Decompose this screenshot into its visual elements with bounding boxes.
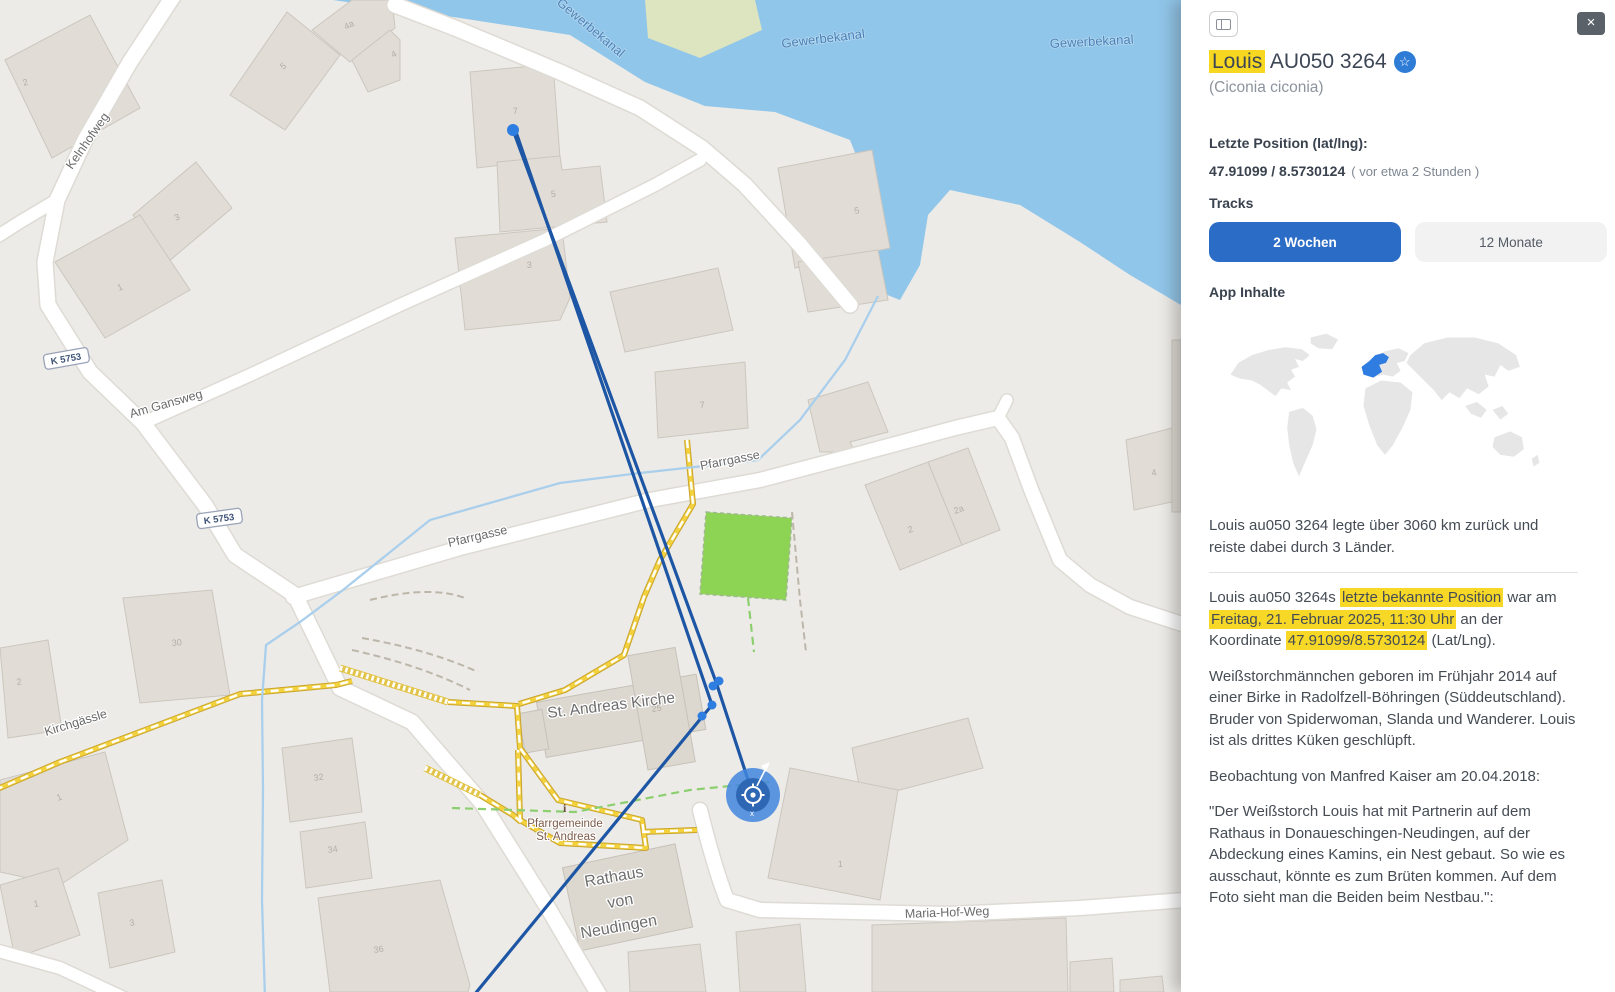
bio-paragraph: Weißstorchmännchen geboren im Frühjahr 2… xyxy=(1209,666,1578,752)
marker-x-label: x xyxy=(750,809,754,818)
tracks-toggle: 2 Wochen 12 Monate xyxy=(1209,222,1607,262)
sports-pitch xyxy=(700,512,792,600)
summary-last-position: Louis au050 3264s letzte bekannte Positi… xyxy=(1209,587,1578,652)
close-button[interactable]: × xyxy=(1577,12,1605,35)
app-contents-label: App Inhalte xyxy=(1209,284,1605,300)
svg-text:1: 1 xyxy=(838,859,844,869)
svg-text:3: 3 xyxy=(527,260,533,270)
observation-heading: Beobachtung von Manfred Kaiser am 20.04.… xyxy=(1209,766,1578,788)
tracks-2-weeks-button[interactable]: 2 Wochen xyxy=(1209,222,1401,262)
map[interactable]: K 5753 K 5753 Gewerbekanal Gewerbekanal … xyxy=(0,0,1181,992)
svg-text:30: 30 xyxy=(171,637,182,648)
migration-world-map xyxy=(1209,316,1561,492)
summary-text: Louis au050 3264 legte über 3060 km zurü… xyxy=(1209,515,1578,909)
track-point xyxy=(708,701,717,710)
last-position-age: ( vor etwa 2 Stunden ) xyxy=(1351,164,1479,179)
svg-text:34: 34 xyxy=(327,844,338,855)
poi-label-pfarrgemeinde: St. Andreas xyxy=(536,831,596,843)
tracks-12-months-button[interactable]: 12 Monate xyxy=(1415,222,1607,262)
street-label-maria-hof-weg: Maria-Hof-Weg xyxy=(905,904,990,921)
highlight-coordinates: 47.91099/8.5730124 xyxy=(1286,631,1428,650)
collapse-panel-button[interactable] xyxy=(1209,11,1238,37)
last-position-label: Letzte Position (lat/lng): xyxy=(1209,135,1605,151)
highlight-last-known-position: letzte bekannte Position xyxy=(1340,588,1503,607)
detail-panel: × Louis AU050 3264 ☆ (Ciconia ciconia) L… xyxy=(1181,0,1615,992)
last-position-value: 47.91099 / 8.5730124 xyxy=(1209,163,1345,179)
summary-distance: Louis au050 3264 legte über 3060 km zurü… xyxy=(1209,515,1578,558)
page-title: Louis AU050 3264 ☆ xyxy=(1209,50,1605,74)
observation-quote: "Der Weißstorch Louis hat mit Partnerin … xyxy=(1209,801,1578,909)
title-ring-id: AU050 3264 xyxy=(1270,50,1387,73)
svg-text:7: 7 xyxy=(699,400,705,410)
divider xyxy=(1209,572,1578,573)
track-point xyxy=(698,712,707,721)
svg-text:25: 25 xyxy=(651,703,662,714)
track-point xyxy=(507,124,519,136)
map-canvas[interactable]: K 5753 K 5753 Gewerbekanal Gewerbekanal … xyxy=(0,0,1181,992)
svg-text:36: 36 xyxy=(373,944,384,955)
svg-text:7: 7 xyxy=(513,106,519,116)
poi-label-pfarrgemeinde: Pfarrgemeinde xyxy=(527,818,602,830)
collapse-panel-icon xyxy=(1216,19,1231,30)
favorite-star-icon[interactable]: ☆ xyxy=(1394,51,1416,73)
title-highlighted-name: Louis xyxy=(1209,50,1265,73)
species-subtitle: (Ciconia ciconia) xyxy=(1209,79,1605,97)
highlight-date-time: Freitag, 21. Februar 2025, 11:30 Uhr xyxy=(1209,610,1456,629)
svg-text:32: 32 xyxy=(313,772,324,783)
app-window: K 5753 K 5753 Gewerbekanal Gewerbekanal … xyxy=(0,0,1615,992)
svg-text:5: 5 xyxy=(551,189,557,199)
track-point xyxy=(709,682,718,691)
tracks-label: Tracks xyxy=(1209,195,1605,211)
